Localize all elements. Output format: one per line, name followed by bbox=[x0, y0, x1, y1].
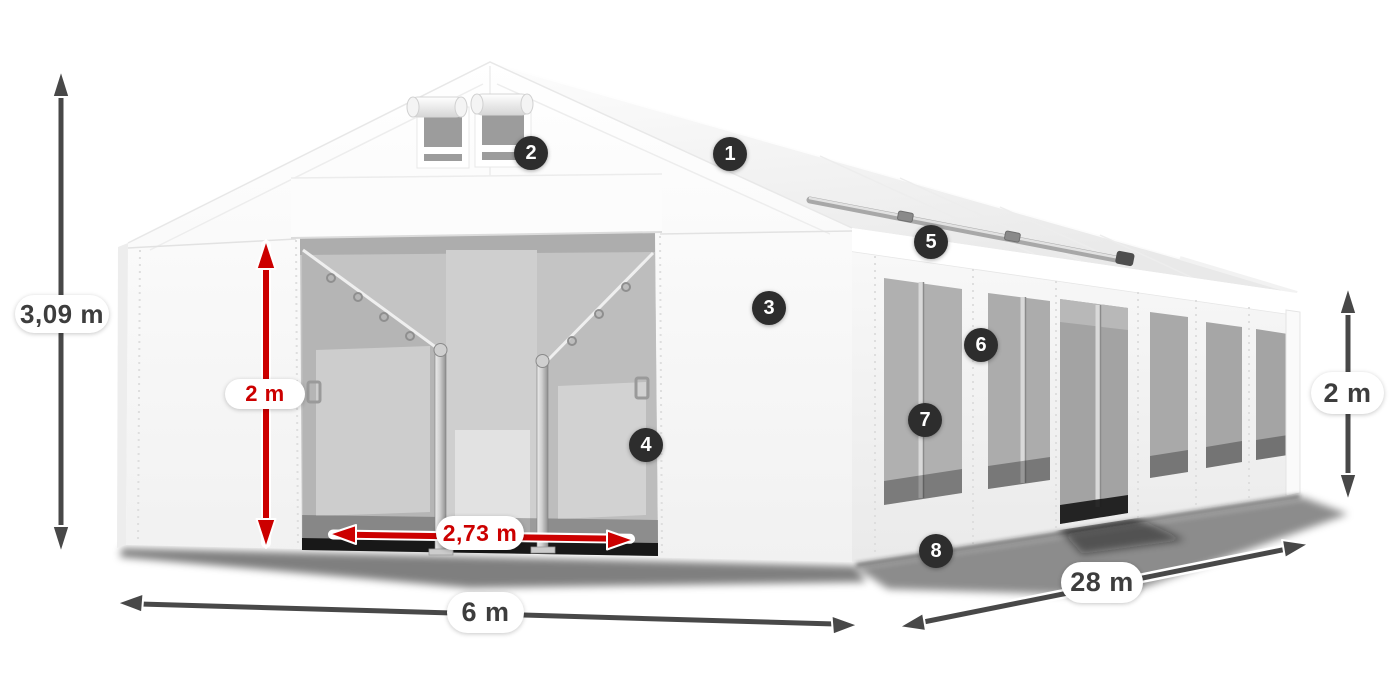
callout-6[interactable]: 6 bbox=[964, 328, 998, 362]
callout-1[interactable]: 1 bbox=[713, 137, 747, 171]
front-door-opening bbox=[300, 230, 658, 556]
dimension-label-door-width: 2,73 m bbox=[436, 516, 524, 550]
callout-8[interactable]: 8 bbox=[919, 534, 953, 568]
tent-dimension-diagram: 3,09 m 2 m 2,73 m 6 m 28 m 2 m 1 2 3 4 5… bbox=[0, 0, 1400, 700]
dimension-label-total-height: 3,09 m bbox=[15, 295, 109, 333]
callout-2[interactable]: 2 bbox=[514, 136, 548, 170]
door-header-beam bbox=[291, 174, 662, 238]
dimension-label-side-height: 2 m bbox=[1311, 372, 1384, 414]
far-corner-post bbox=[1286, 310, 1300, 496]
callout-7[interactable]: 7 bbox=[908, 403, 942, 437]
dimension-label-side-length: 28 m bbox=[1061, 562, 1143, 603]
callout-5[interactable]: 5 bbox=[914, 225, 948, 259]
dimension-label-front-width: 6 m bbox=[447, 592, 524, 633]
tent-illustration bbox=[0, 0, 1400, 700]
callout-4[interactable]: 4 bbox=[629, 428, 663, 462]
page-root: { "dimensions": { "total_height": {"labe… bbox=[0, 0, 1400, 700]
callout-3[interactable]: 3 bbox=[752, 291, 786, 325]
dimension-label-door-height: 2 m bbox=[225, 379, 305, 409]
side-entrance-opening bbox=[1060, 299, 1128, 524]
